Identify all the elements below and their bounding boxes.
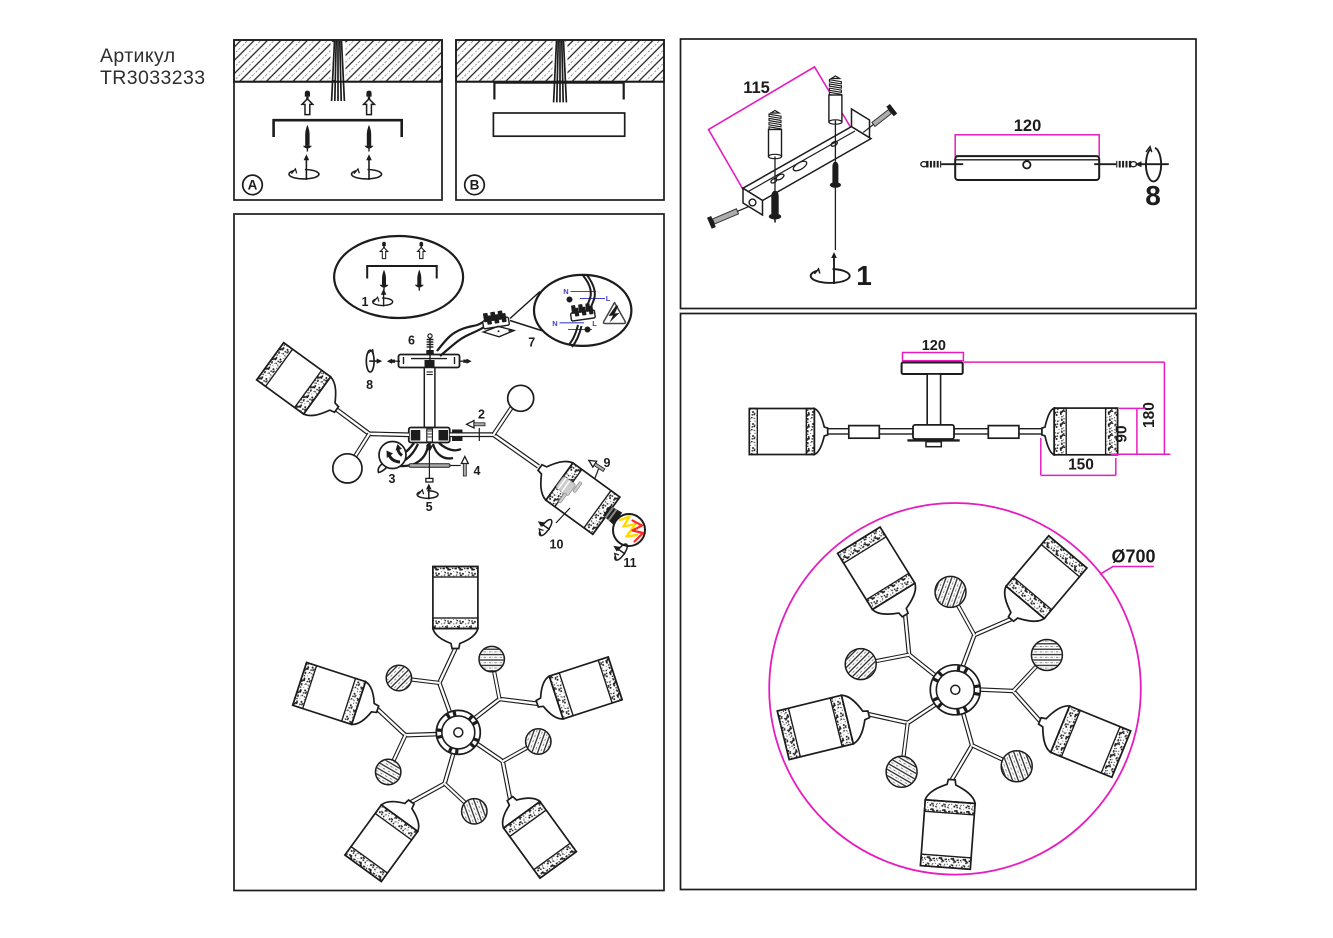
svg-text:1: 1 (362, 295, 369, 309)
svg-text:L: L (606, 294, 611, 303)
svg-text:90: 90 (1114, 425, 1131, 442)
svg-text:115: 115 (743, 79, 770, 97)
svg-text:L: L (592, 319, 597, 328)
svg-text:6: 6 (408, 334, 415, 348)
svg-text:11: 11 (623, 556, 636, 570)
svg-text:120: 120 (1014, 117, 1042, 135)
svg-text:8: 8 (1145, 180, 1161, 211)
svg-text:B: B (470, 178, 480, 193)
svg-text:N: N (563, 287, 568, 296)
svg-text:A: A (248, 178, 258, 193)
svg-text:7: 7 (528, 336, 535, 350)
svg-text:150: 150 (1068, 457, 1094, 474)
svg-text:3: 3 (389, 472, 396, 486)
svg-text:8: 8 (366, 378, 373, 392)
svg-text:TR3033233: TR3033233 (100, 67, 206, 89)
svg-text:5: 5 (426, 500, 433, 514)
svg-text:Ø700: Ø700 (1111, 547, 1155, 567)
svg-text:1: 1 (856, 260, 872, 291)
svg-text:9: 9 (604, 456, 611, 470)
svg-text:2: 2 (478, 408, 485, 422)
svg-text:4: 4 (474, 464, 481, 478)
svg-text:N: N (552, 319, 557, 328)
svg-text:10: 10 (550, 538, 564, 552)
svg-text:120: 120 (922, 338, 946, 354)
svg-text:180: 180 (1141, 402, 1158, 428)
svg-text:Артикул: Артикул (100, 45, 176, 67)
